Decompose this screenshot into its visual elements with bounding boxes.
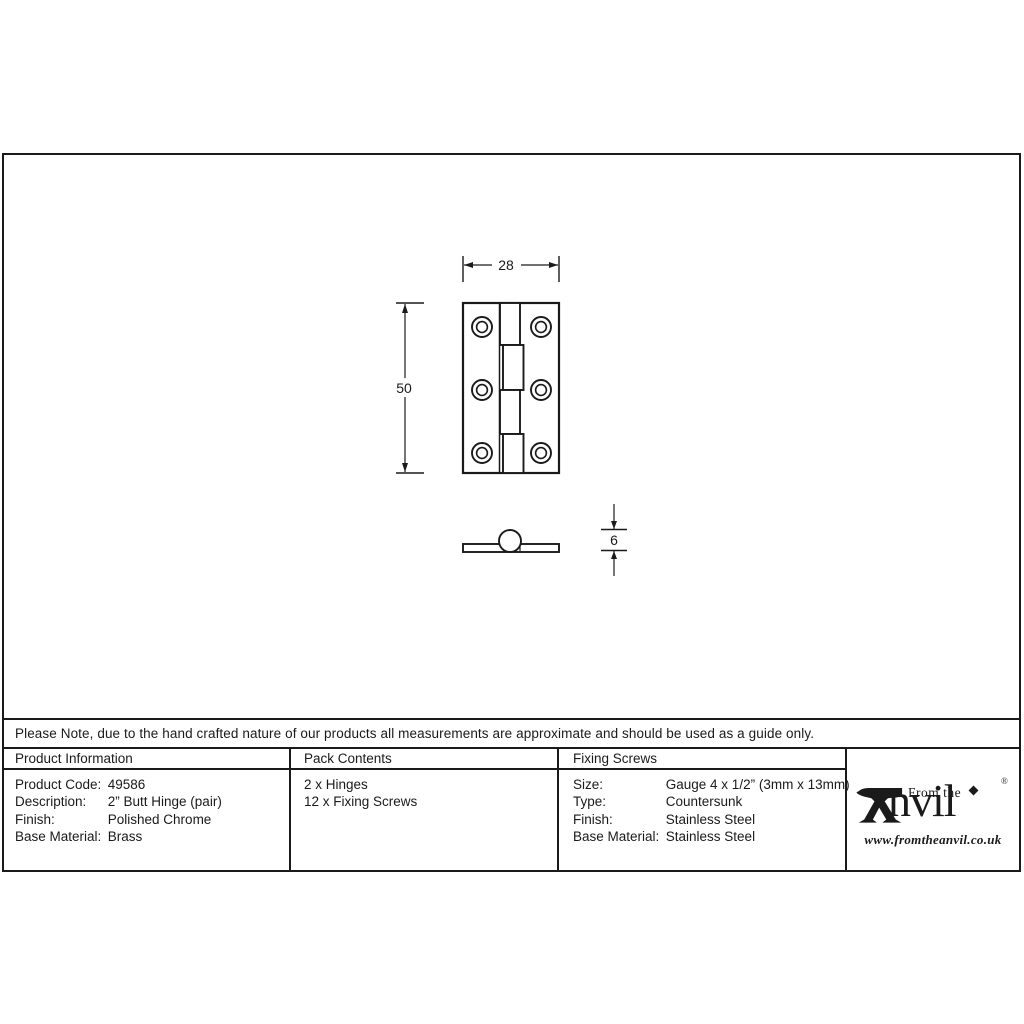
screw-hole — [472, 317, 492, 337]
brand-logo-cell: From the nvil ® www.fromtheanvil.co.uk — [845, 749, 1019, 870]
screw-base-material-value: Stainless Steel — [666, 829, 755, 844]
base-material-row: Base Material: Brass — [4, 828, 289, 845]
pack-item-hinges: 2 x Hinges — [291, 776, 557, 793]
finish-label: Finish: — [15, 811, 104, 828]
spec-table: Product Information Product Code: 49586 … — [4, 747, 1019, 870]
screw-finish-row: Finish: Stainless Steel — [559, 811, 845, 828]
screw-size-row: Size: Gauge 4 x 1/2” (3mm x 13mm) — [559, 776, 845, 793]
screw-base-material-row: Base Material: Stainless Steel — [559, 828, 845, 845]
description-value: 2” Butt Hinge (pair) — [108, 794, 222, 809]
screw-finish-value: Stainless Steel — [666, 812, 755, 827]
fixing-screws-section: Fixing Screws Size: Gauge 4 x 1/2” (3mm … — [557, 749, 845, 870]
screw-size-label: Size: — [573, 776, 662, 793]
diamond-dot-icon — [969, 785, 979, 795]
screw-base-material-label: Base Material: — [573, 828, 662, 845]
finish-value: Polished Chrome — [108, 812, 212, 827]
product-info-section: Product Information Product Code: 49586 … — [4, 749, 289, 870]
product-code-row: Product Code: 49586 — [4, 776, 289, 793]
description-row: Description: 2” Butt Hinge (pair) — [4, 793, 289, 810]
screw-finish-label: Finish: — [573, 811, 662, 828]
hinge-drawing-svg: 28 50 — [4, 155, 1019, 718]
note-text: Please Note, due to the hand crafted nat… — [15, 726, 814, 741]
fixing-screws-header: Fixing Screws — [559, 749, 845, 770]
screw-hole — [531, 443, 551, 463]
brand-logo: From the nvil ® www.fromtheanvil.co.uk — [851, 765, 1015, 855]
base-material-value: Brass — [108, 829, 143, 844]
thickness-dimension-label: 6 — [610, 532, 618, 548]
screw-size-value: Gauge 4 x 1/2” (3mm x 13mm) — [666, 777, 850, 792]
finish-row: Finish: Polished Chrome — [4, 811, 289, 828]
thickness-dimension: 6 — [601, 504, 627, 576]
screw-hole — [472, 380, 492, 400]
technical-drawing: 28 50 — [4, 155, 1019, 718]
width-dimension-label: 28 — [498, 257, 514, 273]
product-code-label: Product Code: — [15, 776, 104, 793]
description-label: Description: — [15, 793, 104, 810]
pack-contents-header: Pack Contents — [291, 749, 557, 770]
note-bar: Please Note, due to the hand crafted nat… — [4, 718, 1019, 747]
screw-type-row: Type: Countersunk — [559, 793, 845, 810]
width-dimension: 28 — [463, 255, 559, 282]
pack-contents-section: Pack Contents 2 x Hinges 12 x Fixing Scr… — [289, 749, 557, 870]
logo-brand-text: nvil — [888, 778, 956, 824]
product-code-value: 49586 — [108, 777, 146, 792]
screw-hole — [531, 380, 551, 400]
page-frame: 28 50 — [2, 153, 1021, 872]
hinge-knuckle — [500, 303, 524, 473]
screw-type-value: Countersunk — [666, 794, 743, 809]
screw-hole — [472, 443, 492, 463]
height-dimension: 50 — [391, 303, 424, 473]
brand-website: www.fromtheanvil.co.uk — [851, 832, 1015, 848]
screw-type-label: Type: — [573, 793, 662, 810]
knuckle-barrel — [499, 530, 521, 552]
hinge-front-view — [463, 303, 559, 473]
product-info-header: Product Information — [4, 749, 289, 770]
height-dimension-label: 50 — [396, 380, 412, 396]
pack-item-screws: 12 x Fixing Screws — [291, 793, 557, 810]
base-material-label: Base Material: — [15, 828, 104, 845]
screw-hole — [531, 317, 551, 337]
hinge-side-view — [463, 530, 559, 552]
registered-mark: ® — [1001, 776, 1008, 786]
